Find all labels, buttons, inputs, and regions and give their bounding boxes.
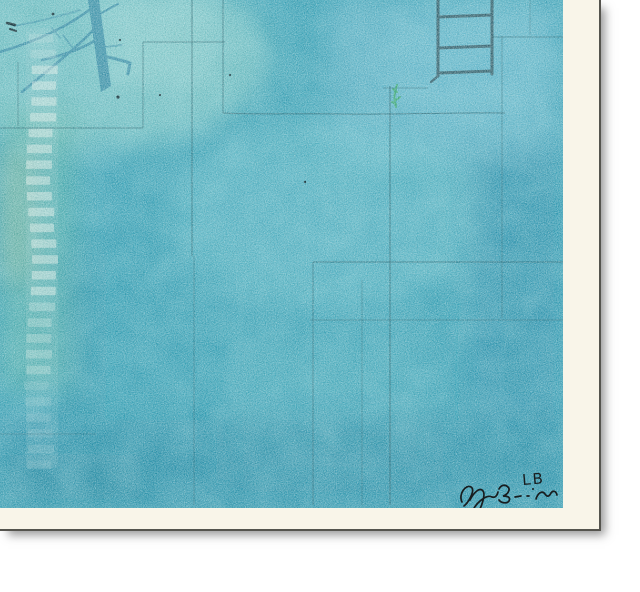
product-photo: LB [0, 0, 640, 592]
grain-dark [0, 0, 563, 508]
initials-lb: LB [521, 469, 545, 489]
painting-canvas: LB [0, 0, 563, 508]
painting: LB [0, 0, 563, 508]
